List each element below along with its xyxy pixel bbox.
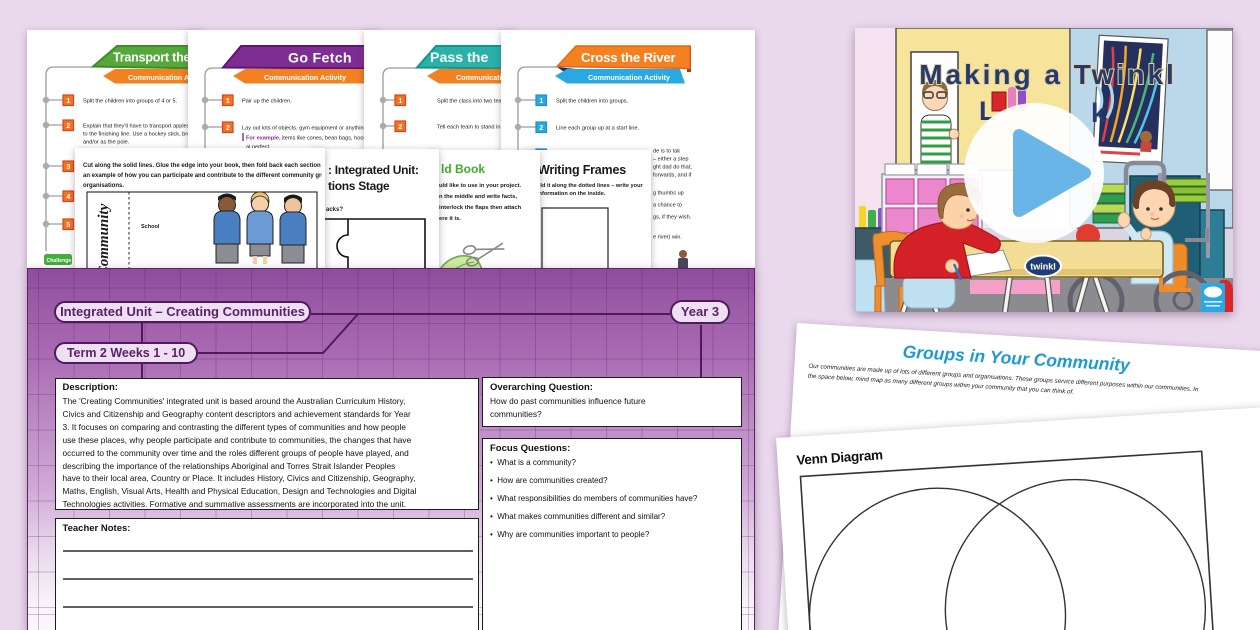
svg-text:Lay out lots of objects, gym e: Lay out lots of objects, gym equipment o… [242, 126, 378, 132]
svg-text:Explain that they'll have to t: Explain that they'll have to transport a… [83, 124, 202, 130]
svg-text:and/or as the pole.: and/or as the pole. [83, 140, 130, 146]
svg-text:e river) win.: e river) win. [653, 235, 682, 241]
svg-text:twinkl: twinkl [1030, 262, 1056, 272]
svg-text:School: School [141, 224, 160, 230]
svg-text:a chance to: a chance to [653, 203, 682, 209]
svg-text:Go Fetch: Go Fetch [288, 51, 352, 67]
svg-text:Communicatio: Communicatio [456, 73, 507, 82]
svg-text:1: 1 [539, 98, 543, 105]
svg-text:Split the children into groups: Split the children into groups. [556, 99, 629, 105]
svg-text:forwards, and if: forwards, and if [653, 173, 692, 179]
svg-text:2: 2 [66, 123, 70, 130]
svg-text:gs, if they wish.: gs, if they wish. [653, 215, 692, 221]
svg-text:n the middle and write facts,: n the middle and write facts, [439, 194, 517, 200]
svg-text:ld Book: ld Book [441, 162, 485, 176]
svg-text:Pair up the children.: Pair up the children. [242, 99, 292, 105]
svg-text:3: 3 [66, 164, 70, 171]
svg-text:Making a Twinkl: Making a Twinkl [919, 59, 1177, 90]
svg-text:k: k [1091, 98, 1107, 128]
svg-text:Communication Act: Communication Act [128, 73, 196, 82]
svg-text:tions Stage: tions Stage [328, 179, 390, 193]
svg-text:Venn Diagram: Venn Diagram [796, 447, 883, 467]
svg-text:Transport the: Transport the [113, 51, 191, 65]
svg-text:– either a step: – either a step [653, 157, 688, 163]
svg-text:1: 1 [226, 98, 230, 105]
svg-text:2: 2 [539, 125, 543, 132]
svg-text:Challenge: Challenge [47, 258, 72, 264]
svg-text:Line each group up at a start: Line each group up at a start line. [556, 126, 639, 132]
svg-text:ere it is.: ere it is. [439, 216, 461, 222]
svg-text:uld like to use in your projec: uld like to use in your project. [439, 183, 522, 189]
svg-text:2: 2 [226, 125, 230, 132]
svg-text:Split the children into groups: Split the children into groups of 4 or 5… [83, 99, 178, 105]
svg-text:: Integrated Unit:: : Integrated Unit: [328, 163, 419, 177]
svg-text:5: 5 [66, 222, 70, 229]
svg-text:Split the class into two teams: Split the class into two teams. [437, 99, 511, 105]
svg-text:Communication Activity: Communication Activity [264, 73, 346, 82]
svg-text:4: 4 [66, 194, 70, 201]
svg-text:Cross the River: Cross the River [581, 50, 676, 65]
svg-text:information on the inside.: information on the inside. [537, 191, 606, 197]
svg-text:Pass the: Pass the [430, 50, 488, 66]
svg-text:de is to tak: de is to tak [653, 149, 680, 155]
svg-text:acks?: acks? [326, 207, 343, 213]
svg-text:interlock the flaps then attac: interlock the flaps then attach [439, 205, 522, 211]
svg-text:1: 1 [398, 98, 402, 105]
svg-text:old it along the dotted lines: old it along the dotted lines – write yo… [537, 183, 643, 189]
svg-text:g thumbs up: g thumbs up [653, 191, 684, 197]
svg-text:Communication Activity: Communication Activity [588, 73, 670, 82]
svg-text:2: 2 [398, 124, 402, 131]
svg-text:organisations.: organisations. [83, 183, 124, 189]
svg-text:ght dad do that,: ght dad do that, [653, 165, 692, 171]
svg-text:1: 1 [66, 98, 70, 105]
svg-text:Community: Community [96, 203, 112, 270]
svg-text:to the finishing line. Use a h: to the finishing line. Use a hockey stic… [83, 132, 202, 138]
svg-text:an example of how you can part: an example of how you can participate an… [83, 173, 322, 179]
svg-text:Cut along the solid lines. Glu: Cut along the solid lines. Glue the edge… [83, 163, 322, 169]
svg-text:Writing Frames: Writing Frames [538, 163, 626, 177]
svg-text:For example,: For example, [246, 136, 281, 142]
